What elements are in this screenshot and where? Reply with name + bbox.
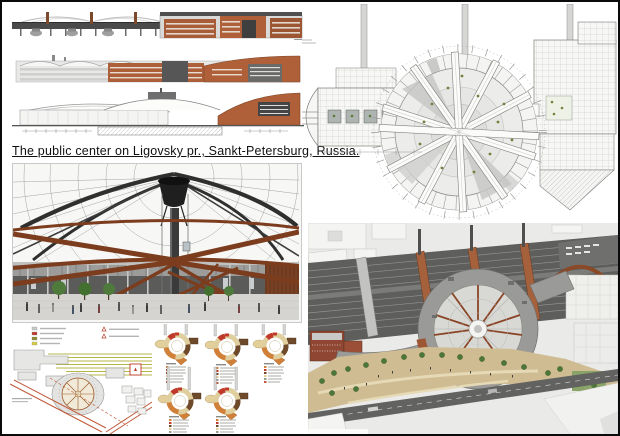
ring-diagram-4-legend — [169, 416, 189, 434]
section-dome — [104, 88, 220, 110]
elevation-panel — [12, 6, 304, 142]
ring-diagram-5-legend — [216, 416, 236, 434]
caption-line — [12, 398, 32, 399]
ring-diagram-2 — [205, 324, 248, 366]
ring-diagram-5 — [205, 367, 248, 420]
page-title: The public center on Ligovsky pr., Sankt… — [12, 144, 304, 160]
elevation-drawing-3 — [12, 86, 304, 142]
marker-b-icon — [102, 334, 106, 338]
building-section — [160, 12, 302, 40]
bridge-mast — [522, 223, 525, 247]
site-marker — [130, 364, 141, 375]
atrium-floor — [13, 294, 299, 320]
marker-a-icon — [102, 327, 106, 331]
plan-bridges — [379, 52, 539, 212]
ring-diagram-4 — [158, 367, 201, 420]
site-plan — [10, 324, 152, 434]
scale-marks — [302, 40, 316, 43]
bridge-mast — [470, 225, 473, 251]
vehicles — [30, 29, 114, 37]
elevation-drawing-2 — [12, 52, 304, 86]
elevator-cab — [183, 242, 190, 251]
presentation-board: The public center on Ligovsky pr., Sankt… — [0, 0, 620, 436]
caption-line — [12, 401, 28, 402]
ring-diagram-3 — [253, 324, 296, 365]
atrium-interior-rendering — [12, 163, 302, 323]
site-legend — [32, 327, 139, 345]
section-wing — [218, 93, 300, 125]
floor-plan — [302, 4, 618, 222]
aerial-rendering — [308, 223, 618, 434]
city-blocks — [122, 386, 151, 414]
ring-diagram-3-legend — [264, 363, 284, 383]
platform-canopy — [12, 12, 162, 36]
bridge-mast — [418, 229, 421, 255]
ring-diagram-2-legend — [216, 364, 236, 384]
scheme-diagrams — [152, 324, 304, 434]
ring-diagram-1 — [155, 324, 198, 365]
elevation-drawing-1 — [12, 6, 304, 46]
